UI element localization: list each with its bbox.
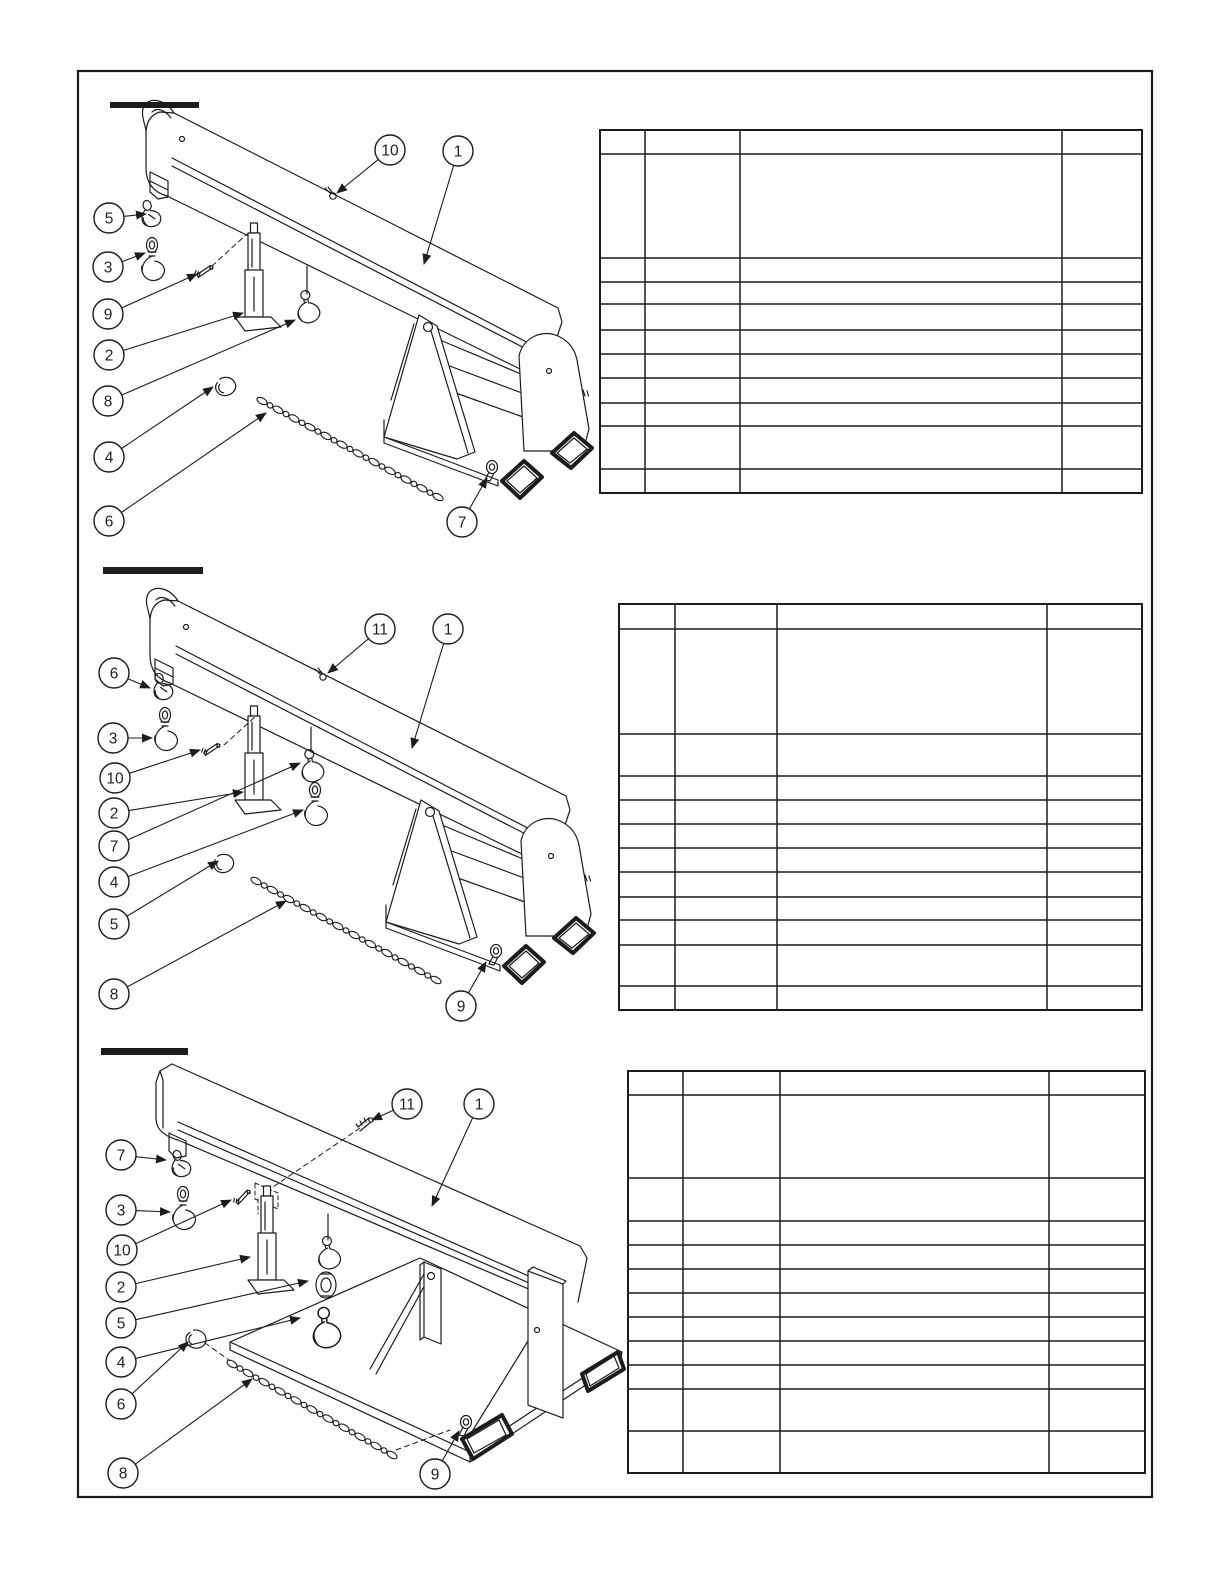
callout-1: 1 xyxy=(412,614,463,748)
callout-5: 5 xyxy=(94,203,146,233)
callout-number: 8 xyxy=(110,987,119,1004)
chain-link xyxy=(306,1404,319,1415)
callout-number: 5 xyxy=(117,1316,126,1333)
chain-link xyxy=(348,930,361,941)
centerline-dashed xyxy=(212,234,247,266)
chain-link xyxy=(338,1422,351,1433)
table-outline xyxy=(628,1071,1145,1473)
set-screw-icon xyxy=(325,187,336,199)
chain-link xyxy=(432,492,445,503)
boom-tube-figure-1 xyxy=(142,100,562,369)
chain-link xyxy=(266,885,279,896)
chain-link xyxy=(384,466,397,477)
callout-11: 11 xyxy=(328,614,395,673)
chain-link xyxy=(299,903,312,914)
parts-manual-page: { "page": { "background": "#ffffff", "in… xyxy=(0,0,1224,1584)
leader-line xyxy=(424,165,454,264)
chain-link xyxy=(250,876,263,887)
callout-number: 2 xyxy=(105,348,114,365)
swivel-hook-icon xyxy=(142,238,165,281)
callout-number: 7 xyxy=(117,1148,126,1165)
callout-number: 9 xyxy=(104,307,113,324)
callout-6: 6 xyxy=(94,413,266,536)
chain-link xyxy=(258,1377,271,1388)
chain-link xyxy=(364,939,377,950)
callout-number: 9 xyxy=(431,1467,440,1484)
leader-line xyxy=(136,1157,166,1160)
leader-line xyxy=(128,679,150,688)
callout-number: 10 xyxy=(113,1243,131,1260)
leader-line xyxy=(136,1318,300,1358)
page-artwork: 1015392846711163102745891117310254689 xyxy=(0,0,1224,1584)
chain-link xyxy=(315,912,328,923)
callout-number: 2 xyxy=(110,806,119,823)
callout-2: 2 xyxy=(99,792,243,828)
callout-number: 9 xyxy=(457,999,466,1016)
fork-frame-base-figure-2 xyxy=(386,800,594,983)
callout-number: 2 xyxy=(117,1280,126,1297)
screw-pin-icon xyxy=(201,743,222,756)
swivel-eye-icon xyxy=(316,1272,336,1298)
leader-line xyxy=(121,413,266,512)
leader-line xyxy=(328,639,369,673)
chain-link xyxy=(320,431,333,442)
parts-list-table xyxy=(600,130,1142,493)
callout-number: 1 xyxy=(454,144,463,161)
chain-hook-icon xyxy=(299,748,325,783)
callout-number: 11 xyxy=(399,1097,415,1114)
shackle-icon xyxy=(214,375,237,397)
chain-link xyxy=(386,1450,399,1461)
leader-line xyxy=(129,792,243,811)
leader-line xyxy=(337,159,378,193)
boom-tube-figure-2 xyxy=(146,588,570,857)
swivel-hook-icon xyxy=(305,783,328,826)
callout-number: 6 xyxy=(105,514,114,531)
callout-number: 7 xyxy=(458,515,467,532)
chain-link xyxy=(413,966,426,977)
chain-link xyxy=(322,1413,335,1424)
callout-number: 3 xyxy=(109,731,118,748)
callout-7: 7 xyxy=(106,1140,166,1170)
screw-pin-icon xyxy=(194,265,215,278)
callout-9: 9 xyxy=(446,962,486,1021)
parts-list-table xyxy=(619,604,1142,1010)
chain-icon xyxy=(226,1359,399,1461)
table-outline xyxy=(600,130,1142,493)
chain-link xyxy=(416,483,429,494)
callout-8: 8 xyxy=(93,320,295,416)
leader-line xyxy=(132,1342,188,1394)
chain-link xyxy=(226,1359,239,1370)
chain-link xyxy=(352,448,365,459)
callout-number: 10 xyxy=(106,771,124,788)
callout-1: 1 xyxy=(424,136,473,264)
centerline-dashed xyxy=(273,1128,360,1187)
document-page: 1015392846711163102745891117310254689 xyxy=(0,0,1224,1584)
chain-hook-icon xyxy=(295,289,321,324)
leader-line xyxy=(122,320,295,395)
redacted-section-title-bar xyxy=(101,1048,188,1055)
callout-number: 4 xyxy=(110,875,119,892)
callout-10: 10 xyxy=(337,135,405,193)
chain-link xyxy=(242,1368,255,1379)
boom-tube-figure-3 xyxy=(156,1064,587,1302)
callout-number: 3 xyxy=(117,1203,126,1220)
set-screw-icon xyxy=(315,668,326,680)
callout-number: 11 xyxy=(372,622,388,639)
leader-line xyxy=(468,962,486,993)
chain-link xyxy=(400,474,413,485)
chain-link xyxy=(370,1441,383,1452)
grab-hook-icon xyxy=(138,198,163,229)
callout-3: 3 xyxy=(98,723,152,753)
callout-number: 10 xyxy=(381,143,399,160)
callout-number: 7 xyxy=(110,839,119,856)
callout-number: 1 xyxy=(475,1097,484,1114)
leader-line xyxy=(122,253,145,262)
redacted-section-title-bar xyxy=(110,102,199,108)
jack-stand-icon xyxy=(235,706,281,814)
callout-number: 6 xyxy=(110,666,119,683)
leader-line xyxy=(129,750,200,773)
chain-link xyxy=(336,439,349,450)
leader-line xyxy=(128,810,303,877)
chain-link xyxy=(368,457,381,468)
leader-line xyxy=(136,1281,308,1320)
exploded-view-figure-1 xyxy=(138,100,592,498)
chain-link xyxy=(430,975,443,986)
leader-line xyxy=(372,1110,393,1120)
chain-link xyxy=(288,413,301,424)
leader-line xyxy=(123,313,243,351)
callout-number: 1 xyxy=(444,622,453,639)
callout-number: 8 xyxy=(104,394,113,411)
swivel-hook-icon xyxy=(173,1187,196,1230)
leader-line xyxy=(136,1257,250,1284)
callout-number: 4 xyxy=(117,1355,126,1372)
chain-link xyxy=(381,948,394,959)
leader-line xyxy=(432,1118,473,1206)
leader-line xyxy=(136,1200,231,1244)
chain-hook-icon xyxy=(317,1236,342,1270)
table-outline xyxy=(619,604,1142,1010)
callout-11: 11 xyxy=(372,1089,422,1120)
eye-bolt-icon xyxy=(485,461,498,482)
callout-number: 6 xyxy=(117,1397,126,1414)
annotations-layer: 1015392846711163102745891117310254689 xyxy=(78,71,1152,1497)
leader-line xyxy=(469,478,487,509)
jack-stand-icon xyxy=(248,1186,294,1294)
exploded-view-figure-2 xyxy=(146,588,594,983)
parts-list-table xyxy=(628,1071,1145,1473)
chain-link xyxy=(282,894,295,905)
leader-line xyxy=(127,861,218,916)
callout-number: 5 xyxy=(110,917,119,934)
redacted-section-title-bar xyxy=(103,567,203,574)
leader-line xyxy=(127,901,286,987)
screw-pin-icon xyxy=(232,1189,253,1205)
chain-hook-icon xyxy=(311,1306,342,1349)
callout-number: 4 xyxy=(105,450,114,467)
shackle-icon xyxy=(184,1328,207,1350)
swivel-hook-icon xyxy=(155,708,178,751)
callout-number: 5 xyxy=(105,211,114,228)
callout-6: 6 xyxy=(99,658,150,688)
chain-link xyxy=(332,921,345,932)
callout-7: 7 xyxy=(447,478,487,537)
callout-4: 4 xyxy=(99,810,303,897)
shackle-icon xyxy=(212,852,235,874)
leader-line xyxy=(121,387,213,449)
callout-3: 3 xyxy=(106,1195,170,1225)
chain-link xyxy=(256,396,269,407)
chain-link xyxy=(274,1386,287,1397)
leader-line xyxy=(135,1379,252,1464)
centerline-dashed xyxy=(205,1343,450,1450)
callout-number: 3 xyxy=(104,260,113,277)
callout-1: 1 xyxy=(432,1089,494,1206)
chain-link xyxy=(304,422,317,433)
chain-link xyxy=(290,1395,303,1406)
leader-line xyxy=(136,1211,170,1212)
callout-10: 10 xyxy=(100,750,200,793)
chain-link xyxy=(272,404,285,415)
callout-9: 9 xyxy=(420,1431,459,1489)
callout-3: 3 xyxy=(93,252,145,282)
leader-line xyxy=(128,763,300,840)
chain-link xyxy=(354,1431,367,1442)
chain-link xyxy=(397,957,410,968)
callout-number: 8 xyxy=(119,1466,128,1483)
